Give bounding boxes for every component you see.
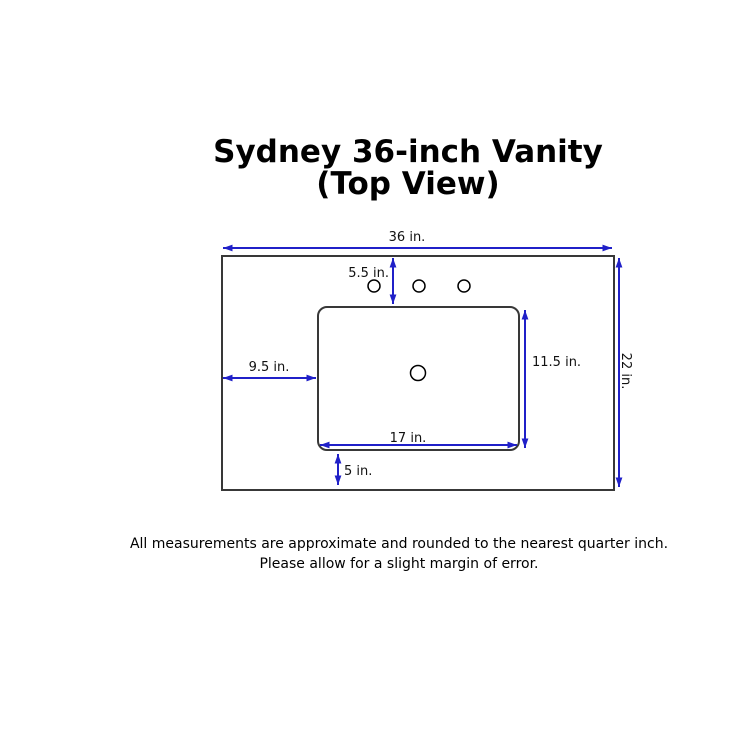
- vanity-dimension-diagram-page: Sydney 36-inch Vanity (Top View) 36 in. …: [0, 0, 755, 755]
- faucet-offset-label: 5.5 in.: [348, 266, 389, 281]
- faucet-hole-right: [458, 280, 470, 292]
- sink-width-label: 17 in.: [390, 431, 427, 446]
- sink-depth-label: 11.5 in.: [532, 355, 581, 370]
- overall-depth-label: 22 in.: [618, 353, 633, 390]
- drain-hole: [411, 366, 426, 381]
- overall-width-label: 36 in.: [389, 230, 426, 245]
- diagram-title-line1: Sydney 36-inch Vanity: [213, 134, 603, 170]
- faucet-hole-center: [413, 280, 425, 292]
- faucet-hole-left: [368, 280, 380, 292]
- diagram-title-line2: (Top View): [316, 166, 499, 202]
- disclaimer-line1: All measurements are approximate and rou…: [130, 536, 668, 552]
- vanity-diagram: Sydney 36-inch Vanity (Top View) 36 in. …: [0, 0, 755, 755]
- sink-left-offset-label: 9.5 in.: [249, 360, 290, 375]
- sink-bottom-offset-label: 5 in.: [344, 464, 372, 479]
- disclaimer-line2: Please allow for a slight margin of erro…: [259, 556, 538, 572]
